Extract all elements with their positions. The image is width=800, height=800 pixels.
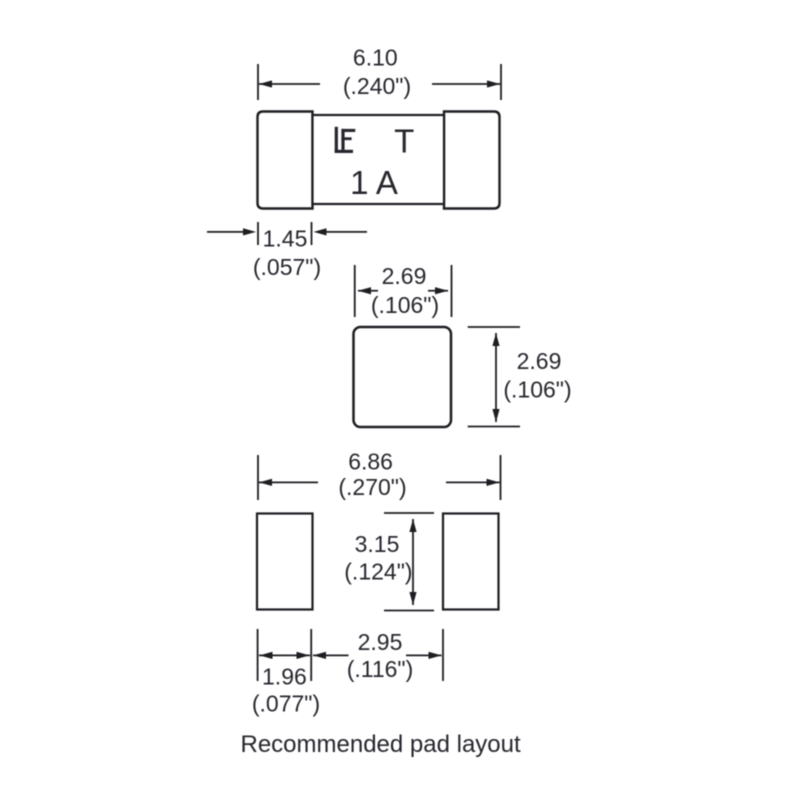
svg-text:(.124"): (.124") (344, 559, 412, 585)
svg-text:2.69: 2.69 (517, 348, 562, 374)
svg-text:3.15: 3.15 (355, 531, 400, 557)
svg-text:(.106"): (.106") (503, 377, 571, 403)
svg-text:6.86: 6.86 (348, 449, 393, 475)
svg-text:2.95: 2.95 (358, 629, 403, 655)
svg-text:(.270"): (.270") (338, 474, 406, 500)
svg-text:T: T (394, 123, 414, 160)
svg-text:Recommended pad layout: Recommended pad layout (241, 731, 522, 758)
svg-text:1 A: 1 A (350, 164, 398, 201)
svg-text:(.057"): (.057") (253, 254, 321, 280)
svg-text:(.240"): (.240") (343, 73, 411, 99)
svg-text:(.116"): (.116") (347, 656, 414, 682)
svg-text:1.45: 1.45 (263, 226, 308, 252)
svg-text:6.10: 6.10 (353, 45, 398, 71)
svg-text:2.69: 2.69 (382, 263, 427, 289)
svg-text:(.077"): (.077") (252, 691, 320, 717)
svg-text:1.96: 1.96 (262, 664, 307, 690)
svg-text:(.106"): (.106") (371, 292, 439, 318)
